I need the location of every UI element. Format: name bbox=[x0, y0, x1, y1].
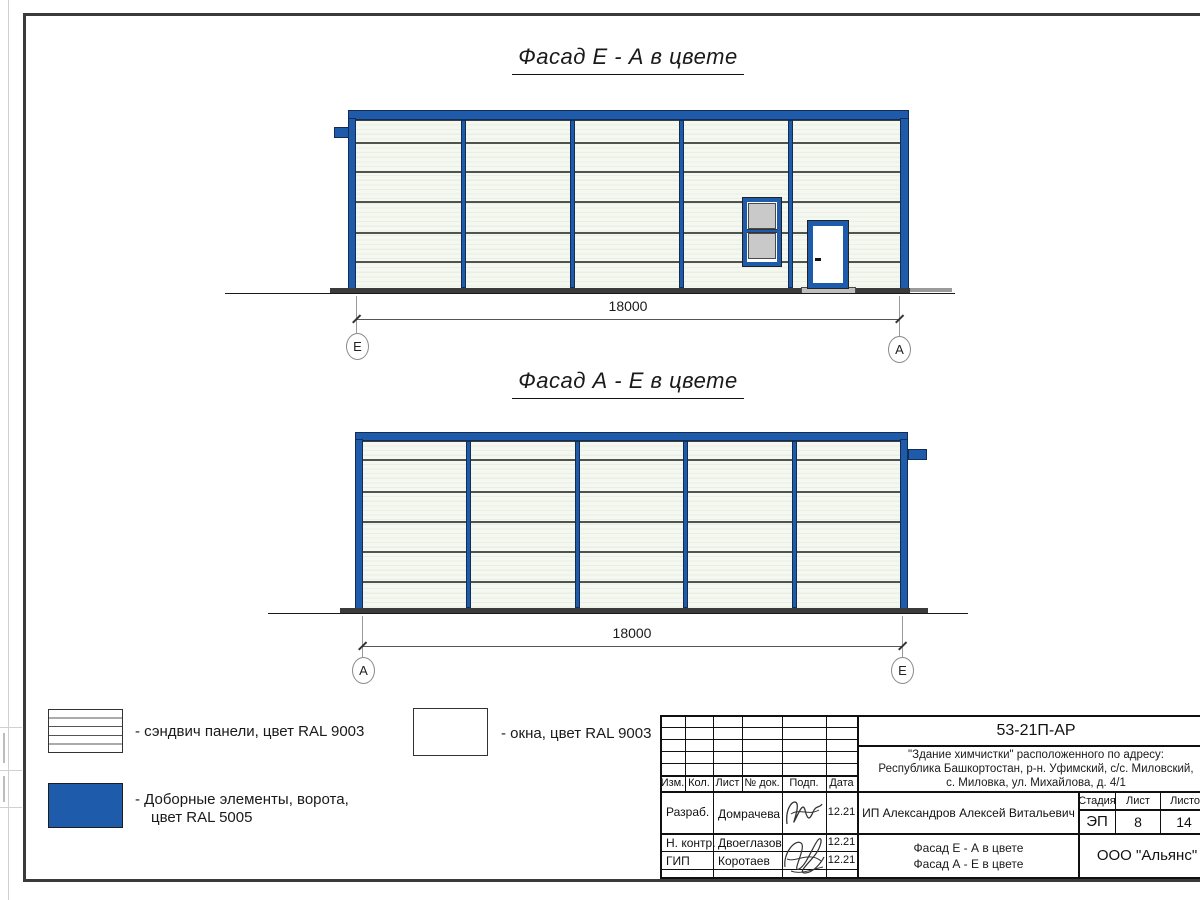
margin-marks bbox=[3, 776, 5, 802]
panel-joint-line bbox=[363, 521, 900, 523]
tb-stage-value: ЭП bbox=[1079, 810, 1115, 833]
facade1-mullion bbox=[461, 120, 466, 288]
facade2-mullion bbox=[792, 441, 797, 608]
tb-row1-role: Разраб. bbox=[666, 805, 709, 819]
facade1-dimension-line bbox=[356, 319, 900, 320]
tb-stage-label: Стадия bbox=[1079, 792, 1115, 809]
legend-label-windows: - окна, цвет RAL 9003 bbox=[501, 725, 651, 742]
facade2-parapet-band bbox=[355, 432, 908, 441]
tb-line bbox=[660, 763, 857, 764]
panel-joint-line bbox=[363, 491, 900, 493]
tb-sheet-title-line2: Фасад А - Е в цвете bbox=[914, 856, 1024, 872]
facade1-mullion bbox=[679, 120, 684, 288]
facade1-corner-column-left bbox=[348, 118, 356, 293]
tb-address-line1: "Здание химчистки" расположенного по адр… bbox=[908, 748, 1164, 762]
legend-label-blue-elements-line1: - Доборные элементы, ворота, bbox=[135, 791, 349, 808]
frame-left bbox=[23, 13, 26, 881]
tb-row2-role: Н. контр. bbox=[666, 836, 716, 850]
signature-razrab-icon bbox=[783, 794, 825, 832]
extension-line bbox=[356, 296, 357, 333]
legend-label-sandwich-panels: - сэндвич панели, цвет RAL 9003 bbox=[135, 723, 364, 740]
facade2-corner-column-left bbox=[355, 439, 363, 613]
tb-col-izm: Изм. bbox=[660, 775, 685, 791]
tb-line bbox=[660, 751, 857, 752]
tb-col-ndok: № док. bbox=[742, 775, 782, 791]
panel-joint-line bbox=[363, 551, 900, 553]
facade1-ground-line bbox=[225, 293, 955, 294]
tb-line bbox=[660, 869, 857, 870]
facade1-axis-right-bubble: А bbox=[888, 336, 911, 363]
tb-sheets-value: 14 bbox=[1161, 810, 1200, 833]
tb-row1-date: 12.21 bbox=[826, 791, 857, 833]
tb-sheet-value: 8 bbox=[1116, 810, 1160, 833]
facade2-corner-column-right bbox=[900, 439, 908, 613]
facade2-ground-line bbox=[268, 613, 968, 614]
tb-line bbox=[660, 877, 1200, 879]
legend-label-blue-elements-line2: цвет RAL 5005 bbox=[151, 809, 252, 826]
tb-sheet-label: Лист bbox=[1116, 792, 1160, 809]
margin-divider bbox=[0, 727, 22, 728]
facade2-gutter-outlet bbox=[908, 449, 927, 460]
panel-joint-line bbox=[356, 201, 902, 203]
tb-col-kol: Кол. bbox=[685, 775, 713, 791]
tb-row2-name: Двоеглазов bbox=[718, 836, 782, 850]
signature-gip-icon bbox=[781, 833, 827, 877]
facade1-apron bbox=[910, 288, 952, 292]
door-handle bbox=[815, 258, 821, 261]
legend-swatch-windows bbox=[413, 708, 488, 756]
facade2-title-wrap: Фасад А - Е в цвете bbox=[448, 368, 808, 399]
tb-col-list: Лист bbox=[713, 775, 742, 791]
legend-swatch-blue-elements bbox=[48, 783, 123, 828]
window-transom-bar bbox=[747, 229, 777, 233]
tb-col-data: Дата bbox=[826, 775, 857, 791]
paper-edge-line bbox=[8, 0, 9, 900]
tb-line bbox=[660, 727, 857, 728]
tb-company: ООО "Альянс" bbox=[1079, 834, 1200, 877]
frame-top bbox=[23, 13, 1200, 16]
facade1-title: Фасад Е - А в цвете bbox=[512, 44, 743, 75]
tb-address-line2: Республика Башкортостан, р-н. Уфимский, … bbox=[878, 762, 1193, 776]
panel-joint-line bbox=[363, 581, 900, 583]
tb-line bbox=[660, 715, 662, 879]
tb-row2-date: 12.21 bbox=[826, 833, 857, 851]
facade2-title: Фасад А - Е в цвете bbox=[512, 368, 743, 399]
facade1-mullion bbox=[788, 120, 793, 288]
margin-marks bbox=[3, 733, 5, 763]
panel-joint-line bbox=[356, 171, 902, 173]
facade1-door bbox=[808, 221, 848, 288]
tb-sheets-label: Листов bbox=[1161, 792, 1200, 809]
tb-line bbox=[713, 715, 714, 879]
tb-row3-date: 12.21 bbox=[826, 851, 857, 869]
frame-bottom bbox=[23, 879, 1200, 882]
tb-line bbox=[660, 739, 857, 740]
tb-row1-name: Домрачева bbox=[718, 807, 780, 821]
tb-col-podp: Подп. bbox=[782, 775, 826, 791]
panel-joint-line bbox=[363, 459, 900, 461]
window-pane-bottom bbox=[748, 233, 776, 259]
tb-doc-number: 53-21П-АР bbox=[859, 717, 1200, 745]
facade2-axis-right-bubble: Е bbox=[891, 657, 914, 684]
facade2-mullion bbox=[575, 441, 580, 608]
facade2-mullion bbox=[466, 441, 471, 608]
tb-sheet-title-line1: Фасад Е - А в цвете bbox=[914, 840, 1024, 856]
margin-divider bbox=[0, 770, 22, 771]
facade2-dimension-line bbox=[362, 646, 903, 647]
drawing-sheet: Фасад Е - А в цвете bbox=[0, 0, 1200, 900]
tb-row3-role: ГИП bbox=[666, 854, 690, 868]
facade1-axis-left-bubble: Е bbox=[346, 333, 369, 360]
facade1-parapet-band bbox=[348, 110, 909, 120]
facade2-wall-panels bbox=[360, 441, 903, 608]
facade1-mullion bbox=[570, 120, 575, 288]
margin-divider bbox=[0, 807, 22, 808]
extension-line bbox=[362, 616, 363, 657]
window-pane-top bbox=[748, 203, 776, 229]
facade1-title-wrap: Фасад Е - А в цвете bbox=[448, 44, 808, 75]
facade2-dimension-value: 18000 bbox=[532, 625, 732, 641]
tb-client: ИП Александров Алексей Витальевич bbox=[859, 792, 1078, 833]
panel-joint-line bbox=[356, 142, 902, 144]
facade1-corner-column-right bbox=[900, 118, 909, 293]
facade2-mullion bbox=[683, 441, 688, 608]
tb-project-address: "Здание химчистки" расположенного по адр… bbox=[859, 746, 1200, 791]
legend-swatch-sandwich-panels bbox=[48, 709, 123, 753]
tb-sheet-title: Фасад Е - А в цвете Фасад А - Е в цвете bbox=[859, 834, 1078, 877]
tb-row3-name: Коротаев bbox=[718, 854, 770, 868]
facade2-axis-left-bubble: А bbox=[352, 657, 375, 684]
extension-line bbox=[902, 616, 903, 657]
facade1-window bbox=[743, 198, 781, 266]
tb-address-line3: с. Миловка, ул. Михайлова, д. 4/1 bbox=[946, 776, 1126, 790]
facade1-dimension-value: 18000 bbox=[528, 298, 728, 314]
